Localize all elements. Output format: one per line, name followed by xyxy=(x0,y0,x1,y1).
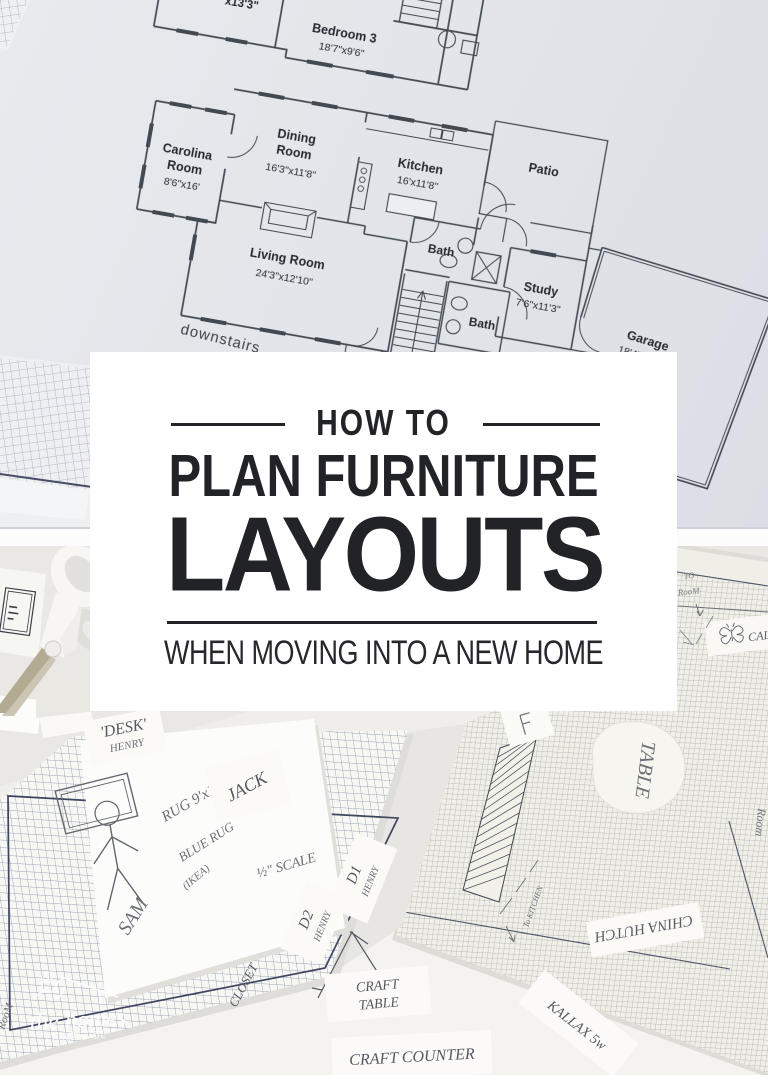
svg-text:Patio: Patio xyxy=(527,161,560,180)
svg-text:24'3"x12'10": 24'3"x12'10" xyxy=(255,267,314,289)
svg-text:Bath: Bath xyxy=(427,241,456,259)
svg-text:8'6"x16': 8'6"x16' xyxy=(163,175,201,193)
svg-text:18'7"x9'6": 18'7"x9'6" xyxy=(318,40,366,60)
svg-text:TO: TO xyxy=(683,570,695,581)
svg-text:Study: Study xyxy=(523,280,560,300)
svg-text:"x13'3": "x13'3" xyxy=(219,0,260,13)
svg-text:16'3"x11'8": 16'3"x11'8" xyxy=(265,161,318,182)
svg-text:7'6"x11'3": 7'6"x11'3" xyxy=(515,296,562,316)
svg-text:Bath: Bath xyxy=(468,315,497,333)
svg-text:16'x11'8": 16'x11'8" xyxy=(396,174,439,193)
svg-text:CAL: CAL xyxy=(747,628,768,645)
